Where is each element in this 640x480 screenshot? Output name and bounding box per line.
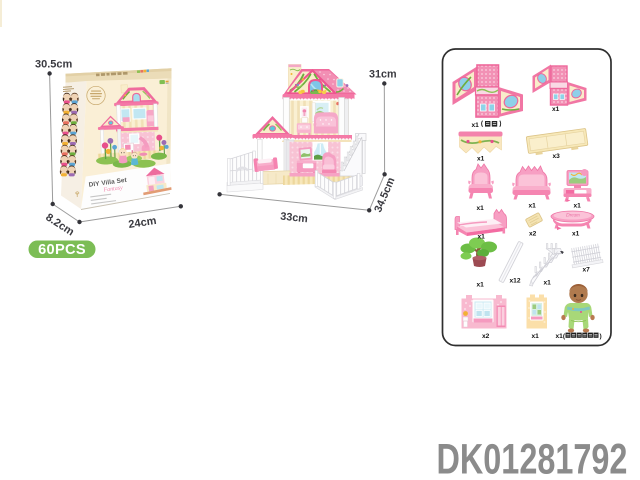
- svg-text:31cm: 31cm: [369, 69, 397, 81]
- svg-text:x1: x1: [478, 234, 486, 241]
- svg-text:x1: x1: [572, 231, 580, 238]
- svg-text:): ): [600, 333, 602, 340]
- svg-text:x1: x1: [574, 203, 582, 210]
- svg-text:x1: x1: [477, 156, 485, 163]
- svg-text:x1: x1: [552, 106, 560, 113]
- svg-text:x7: x7: [583, 267, 591, 274]
- svg-text:Dream: Dream: [565, 214, 580, 219]
- svg-text:x1: x1: [529, 203, 537, 210]
- svg-text:x1(: x1(: [556, 333, 566, 340]
- svg-text:x1: x1: [544, 280, 552, 287]
- svg-text:x3: x3: [553, 153, 561, 160]
- svg-text:x1: x1: [532, 333, 540, 340]
- svg-text:x2: x2: [482, 333, 490, 340]
- svg-text:x1: x1: [477, 282, 485, 289]
- svg-text:30.5cm: 30.5cm: [35, 59, 73, 71]
- svg-text:60PCS: 60PCS: [38, 242, 86, 258]
- svg-text:x12: x12: [510, 278, 521, 285]
- svg-text:x1: x1: [472, 122, 480, 129]
- svg-text:x2: x2: [529, 231, 537, 238]
- svg-text:x1: x1: [477, 205, 485, 212]
- svg-text:DK01281792: DK01281792: [437, 435, 628, 480]
